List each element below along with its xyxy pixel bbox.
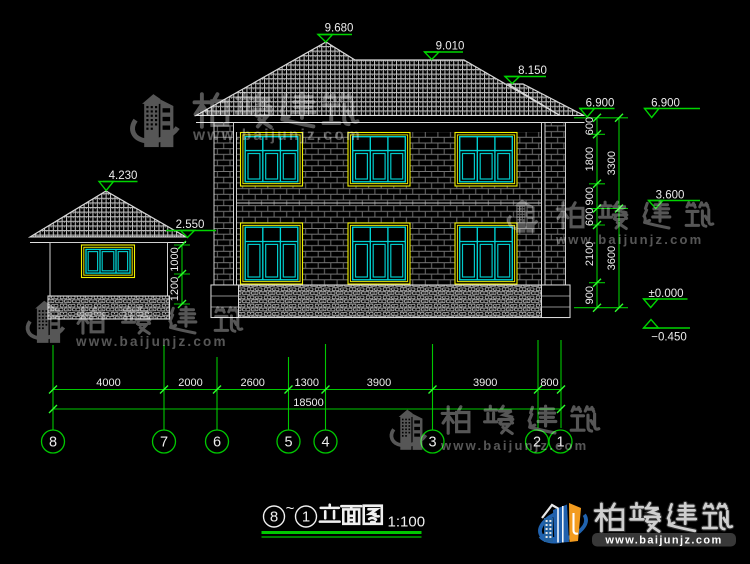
svg-text:6.900: 6.900	[651, 98, 680, 110]
svg-text:900: 900	[584, 187, 596, 205]
svg-text:6.900: 6.900	[586, 98, 615, 110]
svg-text:1: 1	[302, 509, 310, 526]
svg-text:5: 5	[284, 435, 292, 451]
svg-text:3.600: 3.600	[656, 190, 685, 202]
svg-text:4: 4	[321, 435, 329, 451]
svg-text:~: ~	[286, 500, 295, 517]
svg-text:4000: 4000	[96, 377, 120, 389]
svg-text:4.230: 4.230	[109, 170, 138, 182]
svg-text:www.baijunjz.com: www.baijunjz.com	[555, 232, 703, 247]
svg-text:900: 900	[584, 286, 596, 304]
svg-text:www.baijunjz.com: www.baijunjz.com	[75, 334, 228, 349]
svg-text:1000: 1000	[169, 247, 181, 271]
svg-text:6: 6	[213, 435, 221, 451]
svg-text:3300: 3300	[606, 151, 618, 175]
svg-text:2000: 2000	[178, 377, 202, 389]
svg-text:9.680: 9.680	[325, 23, 354, 35]
svg-text:8: 8	[49, 435, 57, 451]
svg-text:1800: 1800	[584, 147, 596, 171]
svg-text:600: 600	[584, 208, 596, 226]
svg-text:3: 3	[428, 435, 436, 451]
svg-text:www.baijunjz.com: www.baijunjz.com	[440, 438, 588, 453]
svg-text:18500: 18500	[293, 397, 324, 409]
svg-text:www.baijunjz.com: www.baijunjz.com	[604, 535, 722, 547]
svg-text:1200: 1200	[169, 277, 181, 301]
svg-text:3600: 3600	[606, 246, 618, 270]
svg-text:8.150: 8.150	[518, 65, 547, 77]
svg-text:3900: 3900	[473, 377, 497, 389]
svg-text:±0.000: ±0.000	[648, 288, 683, 300]
svg-text:600: 600	[584, 117, 596, 135]
svg-text:2.550: 2.550	[176, 219, 205, 231]
svg-text:9.010: 9.010	[436, 41, 465, 53]
svg-text:2600: 2600	[240, 377, 264, 389]
svg-text:1:100: 1:100	[388, 514, 426, 531]
svg-text:3900: 3900	[367, 377, 391, 389]
svg-text:1300: 1300	[295, 377, 319, 389]
svg-text:7: 7	[160, 435, 168, 451]
svg-text:−0.450: −0.450	[651, 332, 687, 344]
svg-text:800: 800	[540, 377, 558, 389]
svg-text:8: 8	[270, 509, 278, 526]
svg-text:www.baijunjz.com: www.baijunjz.com	[192, 127, 362, 144]
